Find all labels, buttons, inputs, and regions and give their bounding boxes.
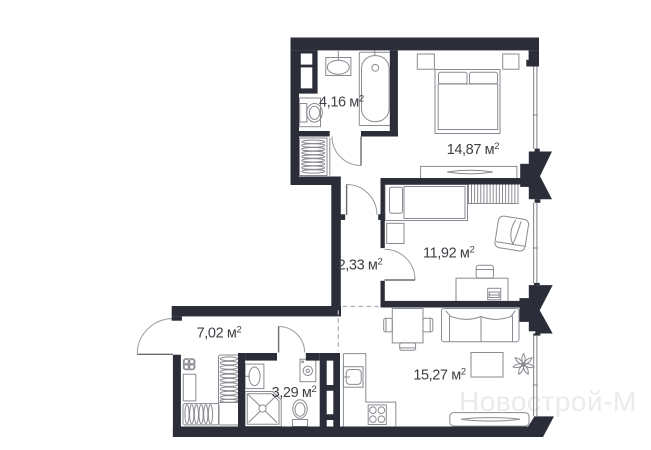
svg-text:3,29 м2: 3,29 м2 bbox=[272, 384, 317, 401]
svg-text:11,92 м2: 11,92 м2 bbox=[423, 245, 474, 262]
svg-text:7,02 м2: 7,02 м2 bbox=[197, 325, 242, 342]
svg-text:4,16 м2: 4,16 м2 bbox=[319, 93, 364, 110]
svg-text:14,87 м2: 14,87 м2 bbox=[447, 141, 499, 158]
svg-text:2,33 м2: 2,33 м2 bbox=[338, 257, 383, 274]
svg-text:15,27 м2: 15,27 м2 bbox=[413, 366, 465, 383]
